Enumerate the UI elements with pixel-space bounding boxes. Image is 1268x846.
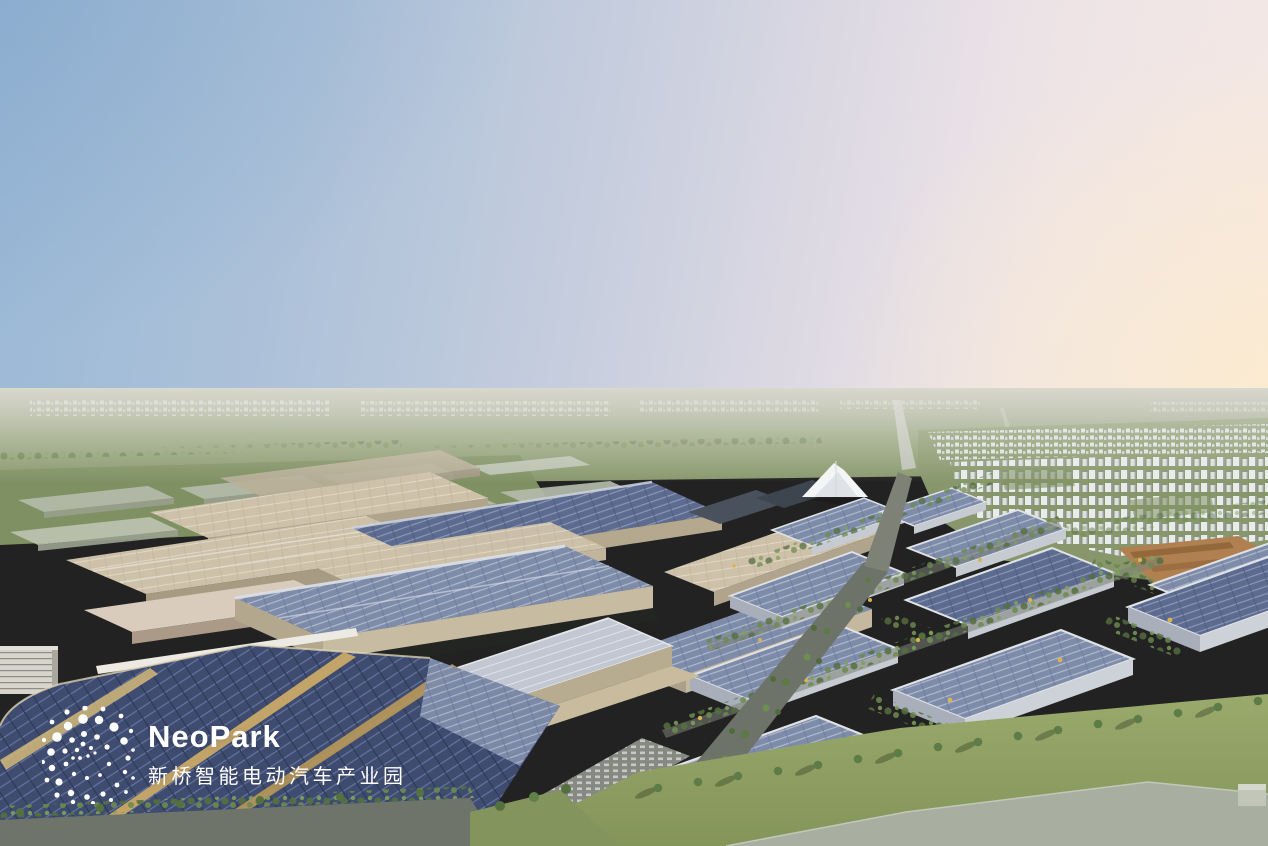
neopark-logo: NeoPark 新桥智能电动汽车产业园 <box>42 706 407 804</box>
logo-text-block: NeoPark 新桥智能电动汽车产业园 <box>148 721 407 790</box>
neopark-aerial-rendering: NeoPark 新桥智能电动汽车产业园 <box>0 0 1268 846</box>
brand-name: NeoPark <box>148 721 407 754</box>
dotted-globe-logo-icon <box>42 706 136 804</box>
atmospheric-haze <box>0 388 1268 483</box>
brand-subtitle-zh: 新桥智能电动汽车产业园 <box>148 760 407 789</box>
